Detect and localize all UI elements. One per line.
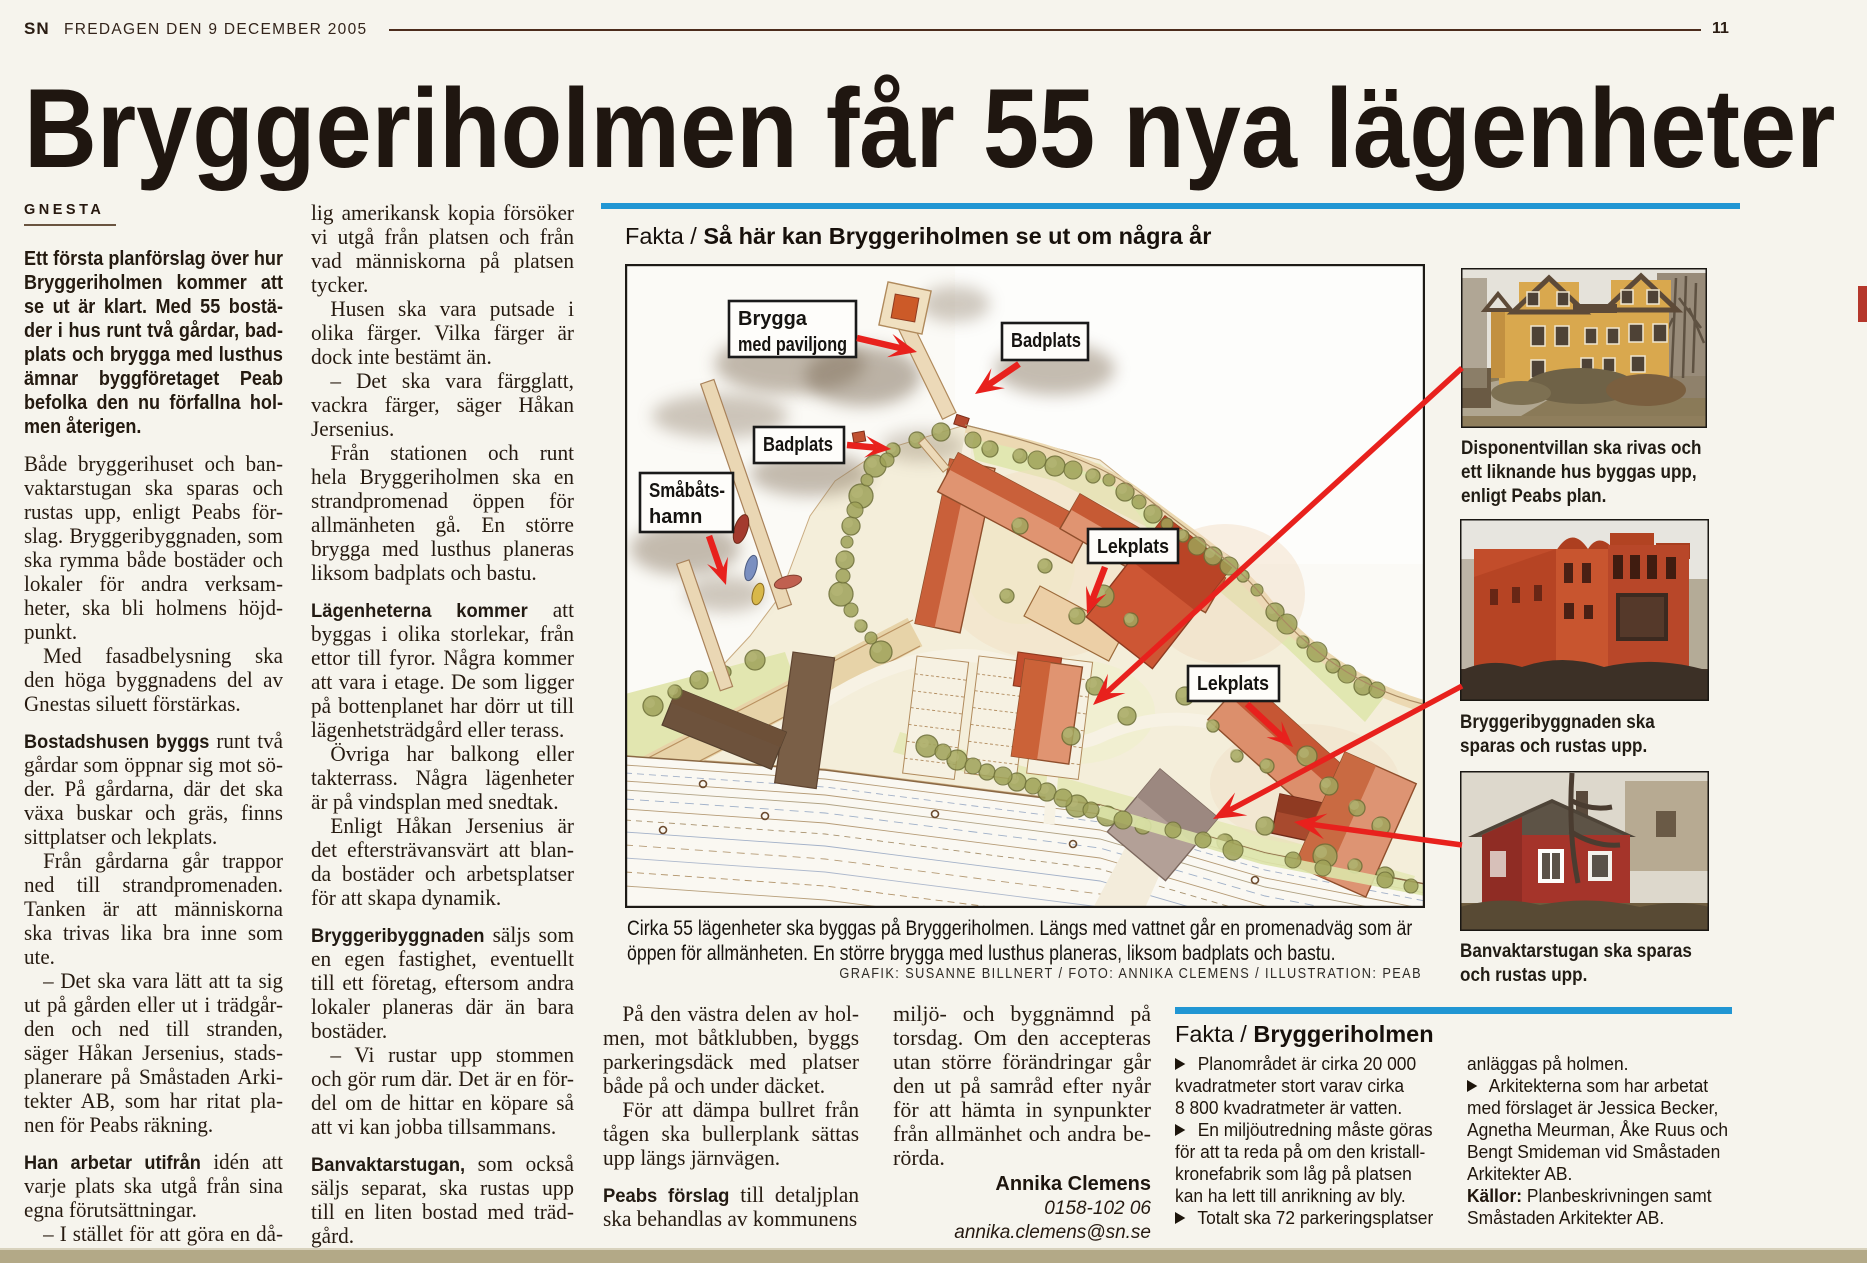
svg-text:Badplats: Badplats bbox=[763, 434, 833, 456]
svg-text:med paviljong: med paviljong bbox=[738, 334, 847, 356]
svg-text:Badplats: Badplats bbox=[1011, 330, 1081, 352]
svg-text:Småbåts-: Småbåts- bbox=[649, 479, 725, 502]
svg-text:hamn: hamn bbox=[649, 506, 702, 528]
svg-text:Lekplats: Lekplats bbox=[1097, 536, 1169, 558]
svg-text:Lekplats: Lekplats bbox=[1197, 673, 1269, 695]
svg-text:Brygga: Brygga bbox=[738, 308, 808, 330]
